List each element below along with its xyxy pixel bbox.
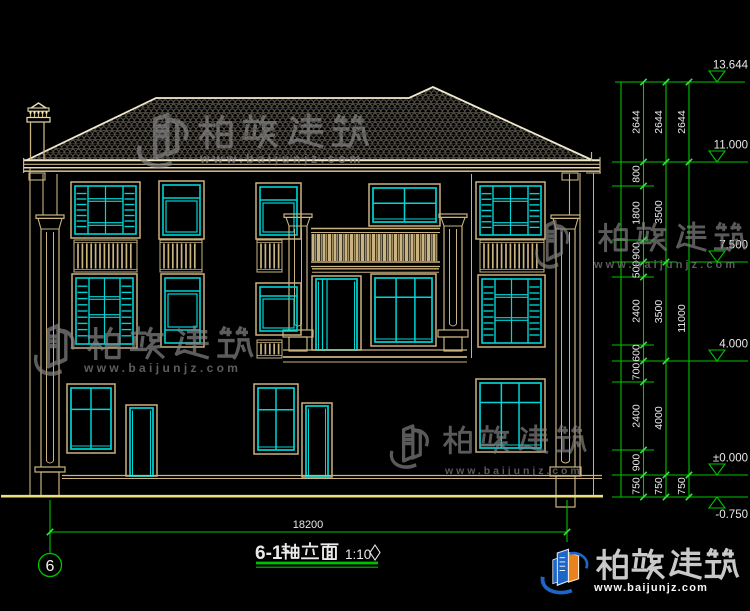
svg-text:2644: 2644 (676, 110, 688, 134)
svg-text:6-1: 6-1 (255, 543, 283, 564)
svg-text:750: 750 (676, 477, 688, 495)
svg-text:13.644: 13.644 (713, 60, 749, 72)
svg-text:1:10: 1:10 (345, 547, 371, 562)
svg-text:2644: 2644 (631, 110, 643, 134)
svg-text:-0.750: -0.750 (715, 509, 748, 521)
svg-text:2400: 2400 (631, 299, 643, 323)
svg-text:18200: 18200 (293, 519, 324, 531)
svg-text:3500: 3500 (653, 200, 665, 224)
svg-text:www.baijunjz.com: www.baijunjz.com (593, 259, 738, 271)
svg-text:6: 6 (46, 558, 55, 575)
svg-text:1800: 1800 (631, 201, 643, 225)
svg-text:2644: 2644 (653, 110, 665, 134)
svg-text:3500: 3500 (653, 300, 665, 324)
svg-text:www.baijunjz.com: www.baijunjz.com (444, 465, 583, 477)
svg-text:4.000: 4.000 (719, 339, 748, 351)
svg-text:www.baijunjz.com: www.baijunjz.com (593, 582, 708, 594)
svg-text:4000: 4000 (653, 406, 665, 430)
svg-text:www.baijunjz.com: www.baijunjz.com (83, 361, 241, 375)
svg-text:600: 600 (631, 344, 643, 362)
svg-text:700: 700 (631, 363, 643, 381)
svg-text:11.000: 11.000 (714, 140, 748, 152)
svg-text:900: 900 (631, 454, 643, 472)
svg-text:800: 800 (631, 165, 643, 183)
svg-text:±0.000: ±0.000 (713, 453, 748, 465)
svg-text:11000: 11000 (676, 304, 688, 333)
svg-text:750: 750 (631, 477, 643, 495)
svg-text:2400: 2400 (631, 404, 643, 428)
svg-text:750: 750 (653, 477, 665, 495)
svg-text:900: 900 (631, 242, 643, 260)
svg-text:www.baijunjz.com: www.baijunjz.com (199, 152, 364, 166)
